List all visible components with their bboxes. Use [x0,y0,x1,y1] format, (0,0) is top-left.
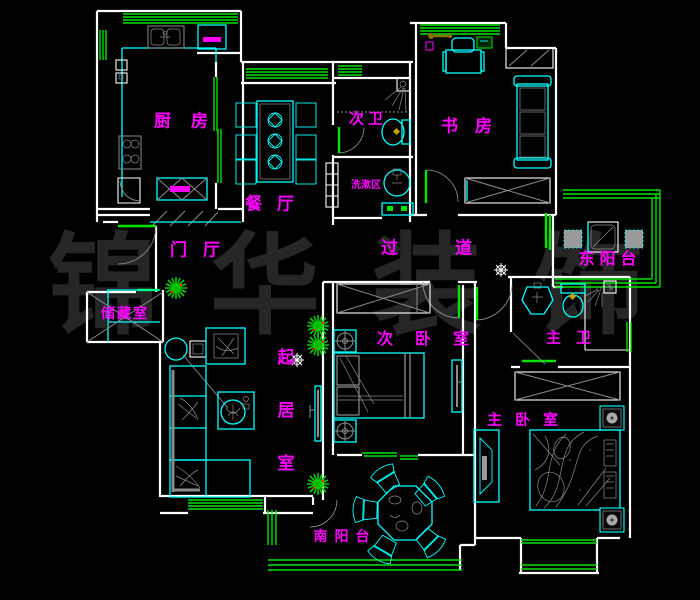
tv-icon [452,360,462,412]
plant-icon [307,334,329,356]
living-furniture [165,315,329,497]
room-label-study: 书房 [441,118,509,135]
nightstand-icon [600,406,624,430]
switch-marker-icon [494,263,508,277]
mat-icon [625,230,643,248]
desk-item-icon [426,42,433,50]
sofa-icon [170,366,250,497]
mat-icon [564,230,582,248]
room-label-foyer: 门厅 [170,242,236,259]
chair-icon [412,524,447,559]
washing-machine-icon [588,222,618,252]
wash-basin-icon [384,169,410,196]
fridge-icon [198,25,226,49]
computer-icon [477,37,492,48]
floor-plan: 锦华装饰 [0,0,700,600]
room-label-master-bedroom: 主卧室 [487,413,571,428]
nightstand-icon [334,420,356,442]
chair-icon [353,496,378,523]
side-table-icon [190,341,206,357]
room-label-bedroom2: 次卧室 [377,332,491,348]
tv-icon [310,386,321,441]
toilet-icon [561,284,585,317]
room-label-dining: 餐厅 [245,196,309,213]
room-label-east-balcony: 东阳台 [578,252,641,268]
room-label-corridor: 过道 [381,240,529,257]
bed-icon [334,353,424,418]
coffee-table-icon [218,392,254,429]
floor-lamp-icon [165,338,187,360]
chair-icon [369,461,404,495]
floor-plan-canvas [0,0,700,600]
sink-icon [522,283,553,314]
plant-icon [165,277,187,299]
daybed-icon [514,76,551,168]
armchair-icon [206,328,245,364]
bed-icon [530,430,620,510]
room-label-storage: 储藏室 [101,306,149,320]
kitchen-cabinet-icon [157,178,207,200]
plant-icon [307,315,329,337]
tv-cabinet-icon [474,430,499,502]
room-label-bath2: 次卫 [349,112,387,127]
dining-furniture [236,101,316,184]
room-label-living: 起居室 [276,348,293,507]
chair-icon [412,474,447,509]
plant-icon [307,473,329,495]
room-label-wash-area: 洗漱区 [351,181,381,191]
south-balcony-items [353,461,448,566]
kitchen-sink-icon [148,26,184,48]
nightstand-icon [334,330,356,352]
storage-bench-icon [465,178,550,203]
east-balcony-items [564,222,643,252]
wardrobe-icon [337,284,430,313]
room-label-south-balcony: 南阳台 [314,529,377,543]
wardrobe-icon [515,372,620,400]
bedroom2-furniture [334,284,462,442]
room-label-kitchen: 厨房 [154,113,228,130]
room-label-master-bath: 主卫 [546,331,606,346]
master-bedroom-furniture [474,372,624,532]
nightstand-icon [600,508,624,532]
shower-icon [585,281,616,307]
bookshelf-icon [506,48,553,68]
